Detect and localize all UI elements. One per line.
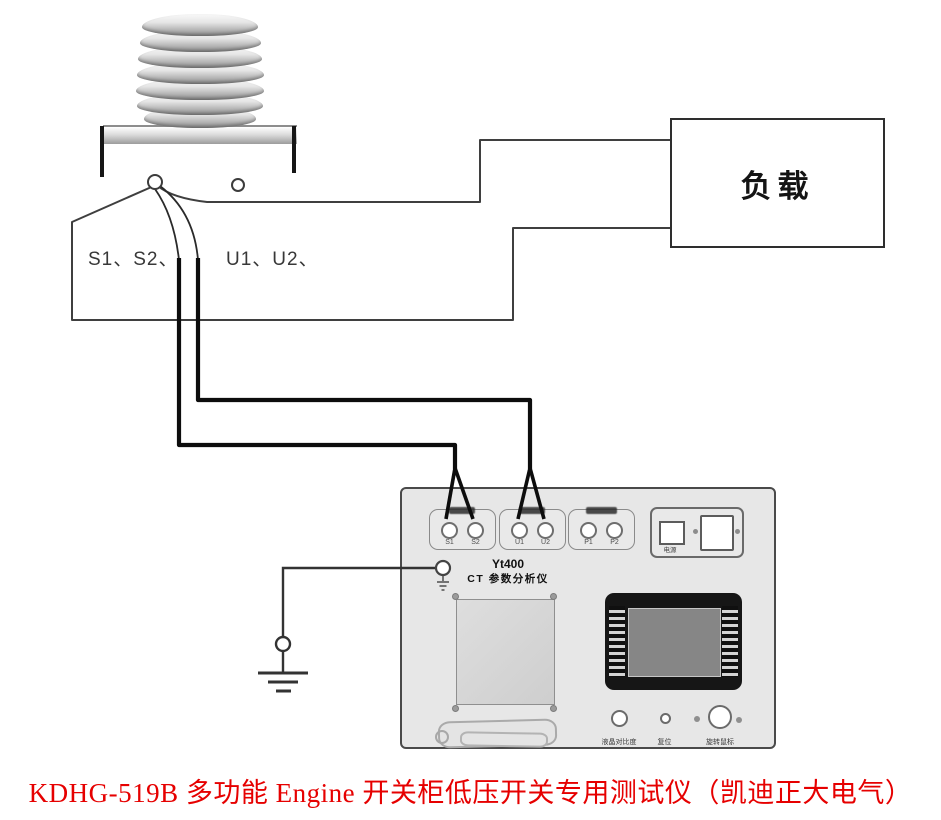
- power-section: 电源: [650, 507, 744, 558]
- device-name: CT 参数分析仪: [442, 571, 574, 586]
- terminal-s1: [441, 522, 458, 539]
- terminal-u2: [537, 522, 554, 539]
- terminal-u1: [511, 522, 528, 539]
- ct-body-left-edge: [100, 126, 104, 177]
- primary-circuit-wires: [72, 140, 670, 320]
- load-box: 负载: [670, 118, 885, 248]
- terminal-p1-label: P1: [580, 539, 597, 546]
- terminal-group-p-badge: [586, 507, 617, 514]
- heatsink-fins-left: [609, 606, 625, 677]
- figure-caption: KDHG-519B 多功能 Engine 开关柜低压开关专用测试仪（凯迪正大电气…: [0, 771, 941, 810]
- terminal-s2-label: S2: [467, 539, 484, 546]
- terminal-u1-label: U1: [511, 539, 528, 546]
- terminal-p2: [606, 522, 623, 539]
- lcd-screen: [628, 608, 721, 677]
- terminal-group-p: P1 P2: [568, 509, 635, 550]
- reset-button: [660, 713, 671, 724]
- terminal-group-s: S1 S2: [429, 509, 496, 550]
- lcd-display-bezel: [605, 593, 742, 690]
- terminal-p1: [580, 522, 597, 539]
- terminal-group-u: U1 U2: [499, 509, 566, 550]
- ct-primary-terminal-left: [147, 174, 163, 190]
- socket-screw-left: [693, 529, 698, 534]
- rotary-mouse-label: 旋转鼠标: [690, 737, 750, 747]
- u-cable: [198, 258, 530, 469]
- keypad-screw: [550, 705, 557, 712]
- power-switch: [659, 521, 685, 545]
- test-cables: [179, 258, 544, 519]
- load-label: 负载: [741, 161, 815, 206]
- contrast-label: 液晶对比度: [590, 737, 648, 747]
- terminal-s1-label: S1: [441, 539, 458, 546]
- terminal-s2: [467, 522, 484, 539]
- ct-primary-terminal-right: [231, 178, 245, 192]
- ground-lug: [276, 637, 290, 651]
- primary-wire-upper: [158, 140, 670, 202]
- keypad-screw: [452, 593, 459, 600]
- contrast-knob: [611, 710, 628, 727]
- ct-body-right-edge: [292, 126, 296, 173]
- reset-label: 复位: [647, 737, 682, 747]
- s-cable: [179, 258, 455, 469]
- power-label: 电源: [655, 544, 685, 554]
- terminal-p2-label: P2: [606, 539, 623, 546]
- rotary-dot-right: [736, 717, 742, 723]
- power-socket: [700, 515, 734, 551]
- bushing-shed: [142, 14, 258, 36]
- keypad-area: [456, 599, 555, 705]
- rotary-dot-left: [694, 716, 700, 722]
- ct-secondary-wires-label: S1、S2、: [88, 244, 178, 271]
- keypad-screw: [550, 593, 557, 600]
- socket-screw-right: [735, 529, 740, 534]
- wiring-diagram: S1、S2、 U1、U2、 负载 S1 S2 U1 U2 P1 P2: [0, 0, 941, 820]
- terminal-group-u-badge: [519, 507, 545, 514]
- device-model: Yt400: [460, 557, 556, 571]
- terminal-u2-label: U2: [537, 539, 554, 546]
- tester-front-panel: S1 S2 U1 U2 P1 P2 电源 Yt400: [400, 487, 776, 749]
- rotary-mouse-knob: [708, 705, 732, 729]
- blurred-logo-smudge: [435, 730, 449, 744]
- ct-voltage-wires-label: U1、U2、: [226, 244, 319, 271]
- heatsink-fins-right: [722, 606, 738, 677]
- keypad-screw: [452, 705, 459, 712]
- terminal-group-s-badge: [449, 507, 475, 514]
- blurred-logo-smudge: [460, 731, 548, 748]
